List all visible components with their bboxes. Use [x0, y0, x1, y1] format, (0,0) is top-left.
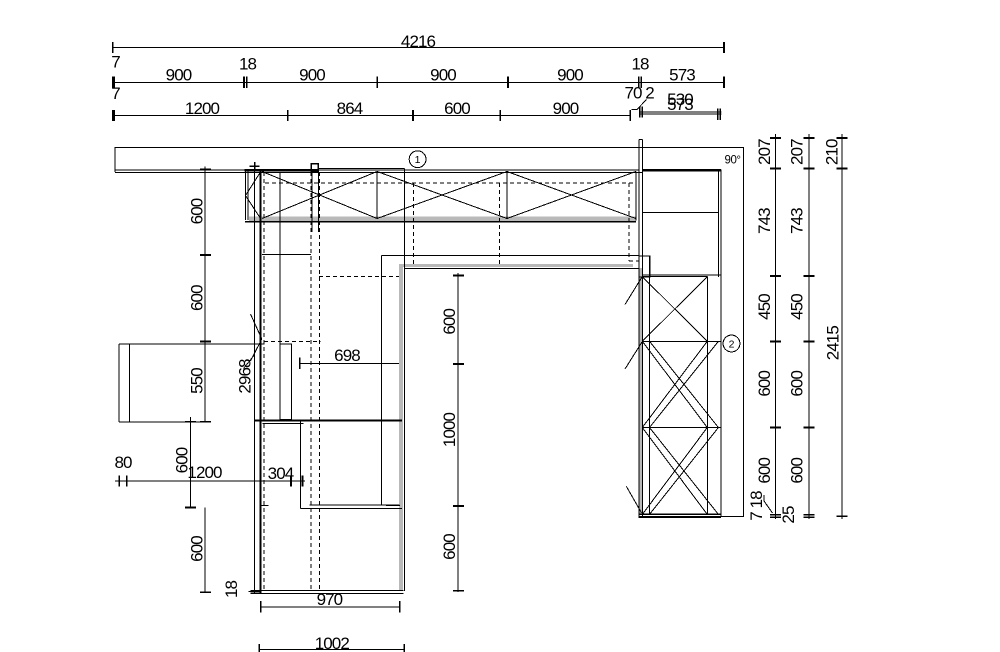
svg-text:4216: 4216 [401, 32, 436, 51]
svg-text:80: 80 [114, 453, 132, 472]
svg-text:900: 900 [299, 66, 325, 85]
svg-text:207: 207 [788, 139, 807, 165]
svg-text:1002: 1002 [315, 634, 350, 652]
svg-text:900: 900 [166, 66, 192, 85]
svg-text:210: 210 [823, 139, 842, 165]
svg-text:600: 600 [788, 371, 807, 397]
svg-text:600: 600 [440, 534, 459, 560]
svg-text:573: 573 [667, 95, 693, 114]
svg-text:600: 600 [440, 309, 459, 335]
svg-text:864: 864 [337, 99, 363, 118]
svg-text:600: 600 [188, 285, 207, 311]
svg-text:600: 600 [788, 458, 807, 484]
svg-text:18: 18 [239, 55, 257, 74]
svg-text:2968: 2968 [236, 359, 255, 394]
svg-text:743: 743 [788, 208, 807, 234]
svg-text:600: 600 [755, 458, 774, 484]
svg-text:900: 900 [553, 99, 579, 118]
svg-text:304: 304 [268, 464, 294, 483]
svg-text:2: 2 [645, 83, 654, 102]
svg-text:7 18: 7 18 [747, 491, 766, 521]
svg-text:450: 450 [755, 294, 774, 320]
svg-text:743: 743 [755, 208, 774, 234]
svg-text:450: 450 [788, 294, 807, 320]
svg-text:600: 600 [188, 198, 207, 224]
svg-text:550: 550 [188, 368, 207, 394]
svg-text:900: 900 [557, 66, 583, 85]
svg-text:600: 600 [444, 99, 470, 118]
svg-text:25: 25 [779, 506, 798, 524]
svg-text:1: 1 [415, 154, 421, 166]
svg-text:18: 18 [631, 55, 649, 74]
svg-text:2415: 2415 [824, 326, 843, 361]
svg-text:70: 70 [624, 83, 642, 102]
svg-text:207: 207 [755, 139, 774, 165]
svg-text:1200: 1200 [185, 99, 220, 118]
svg-text:970: 970 [317, 590, 343, 609]
svg-text:1000: 1000 [440, 412, 459, 447]
svg-text:698: 698 [334, 346, 360, 365]
svg-text:573: 573 [669, 66, 695, 85]
svg-text:600: 600 [188, 536, 207, 562]
svg-text:7: 7 [111, 53, 120, 72]
svg-text:1200: 1200 [187, 463, 222, 482]
svg-text:900: 900 [430, 66, 456, 85]
svg-text:18: 18 [222, 581, 241, 599]
svg-text:90°: 90° [725, 155, 741, 167]
svg-text:2: 2 [729, 338, 735, 350]
svg-text:600: 600 [755, 371, 774, 397]
